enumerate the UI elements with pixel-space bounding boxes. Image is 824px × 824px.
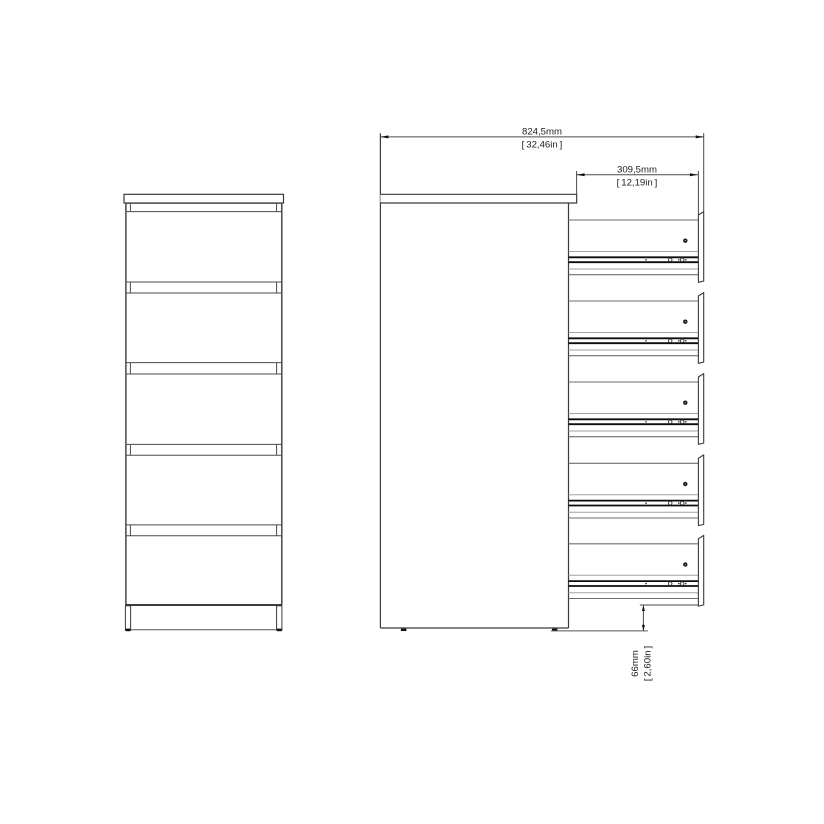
svg-text:[ 2,60in ]: [ 2,60in ] (643, 646, 654, 681)
svg-text:66mm: 66mm (630, 650, 641, 677)
svg-text:309,5mm: 309,5mm (617, 165, 657, 176)
svg-text:[ 32,46in ]: [ 32,46in ] (522, 139, 563, 150)
svg-text:824,5mm: 824,5mm (522, 127, 562, 138)
svg-text:[ 12,19in ]: [ 12,19in ] (617, 177, 658, 188)
